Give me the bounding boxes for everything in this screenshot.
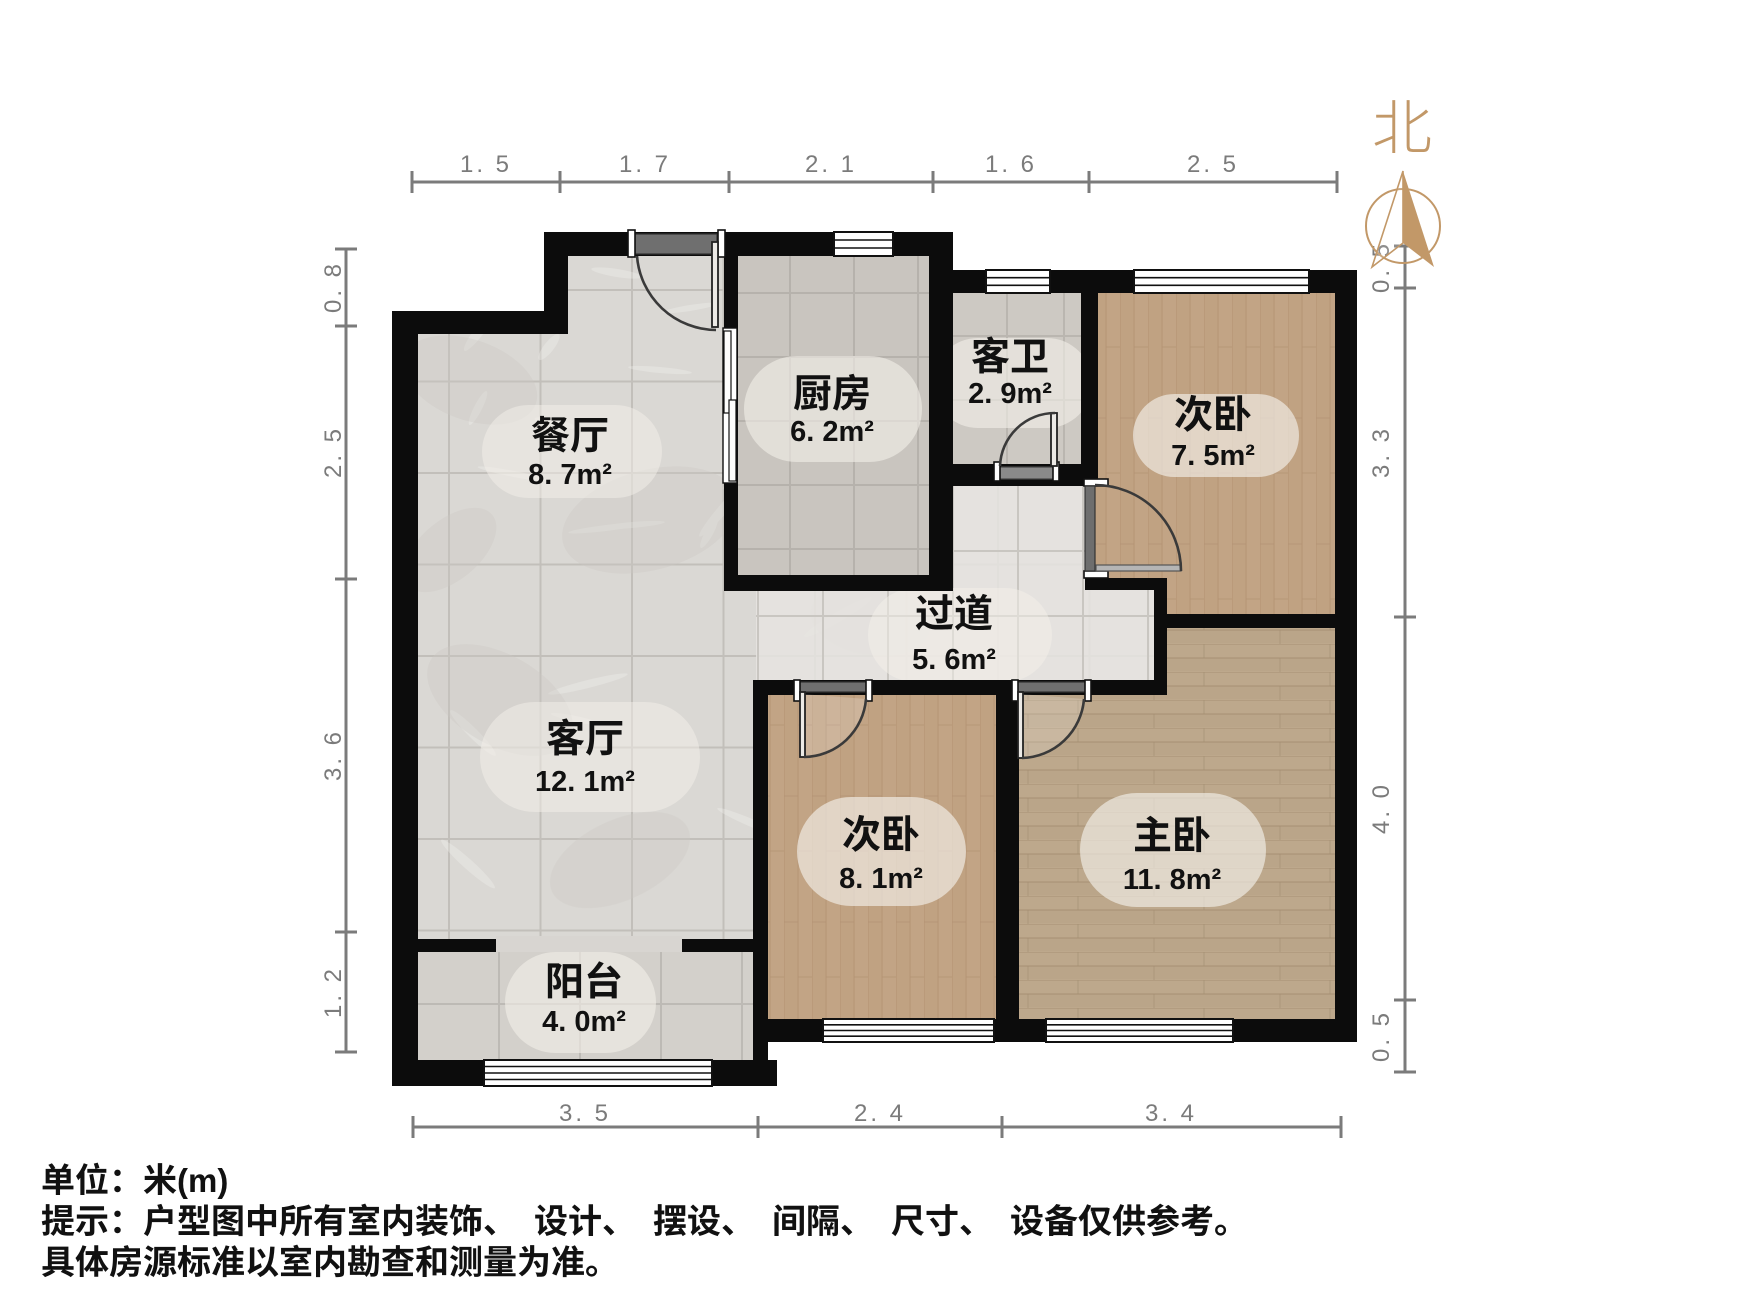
svg-text:2. 9m²: 2. 9m² bbox=[968, 378, 1052, 410]
svg-text:11. 8m²: 11. 8m² bbox=[1123, 864, 1222, 896]
svg-text:2. 5: 2. 5 bbox=[1187, 151, 1239, 178]
svg-text:8. 7m²: 8. 7m² bbox=[528, 459, 612, 491]
svg-text:2. 4: 2. 4 bbox=[854, 1100, 906, 1127]
svg-text:1. 7: 1. 7 bbox=[619, 151, 671, 178]
svg-text:5. 6m²: 5. 6m² bbox=[912, 644, 996, 676]
svg-text:0. 5: 0. 5 bbox=[1368, 1010, 1395, 1062]
svg-text:3. 3: 3. 3 bbox=[1368, 426, 1395, 478]
svg-text:7. 5m²: 7. 5m² bbox=[1171, 440, 1255, 472]
svg-text:0. 8: 0. 8 bbox=[320, 261, 347, 313]
svg-text:1. 2: 1. 2 bbox=[320, 966, 347, 1018]
svg-text:2. 5: 2. 5 bbox=[320, 426, 347, 478]
svg-text:1. 5: 1. 5 bbox=[460, 151, 512, 178]
svg-text:8. 1m²: 8. 1m² bbox=[839, 863, 923, 895]
svg-text:4. 0m²: 4. 0m² bbox=[542, 1006, 626, 1038]
svg-text:3. 6: 3. 6 bbox=[320, 729, 347, 781]
svg-text:4. 0: 4. 0 bbox=[1368, 782, 1395, 834]
svg-text:(m): (m) bbox=[177, 1162, 228, 1199]
svg-text:3. 4: 3. 4 bbox=[1145, 1100, 1197, 1127]
svg-text:12. 1m²: 12. 1m² bbox=[535, 766, 635, 798]
svg-text:3. 5: 3. 5 bbox=[559, 1100, 611, 1127]
svg-text:2. 1: 2. 1 bbox=[805, 151, 857, 178]
svg-text:6. 2m²: 6. 2m² bbox=[790, 416, 874, 448]
svg-text:1. 6: 1. 6 bbox=[985, 151, 1037, 178]
